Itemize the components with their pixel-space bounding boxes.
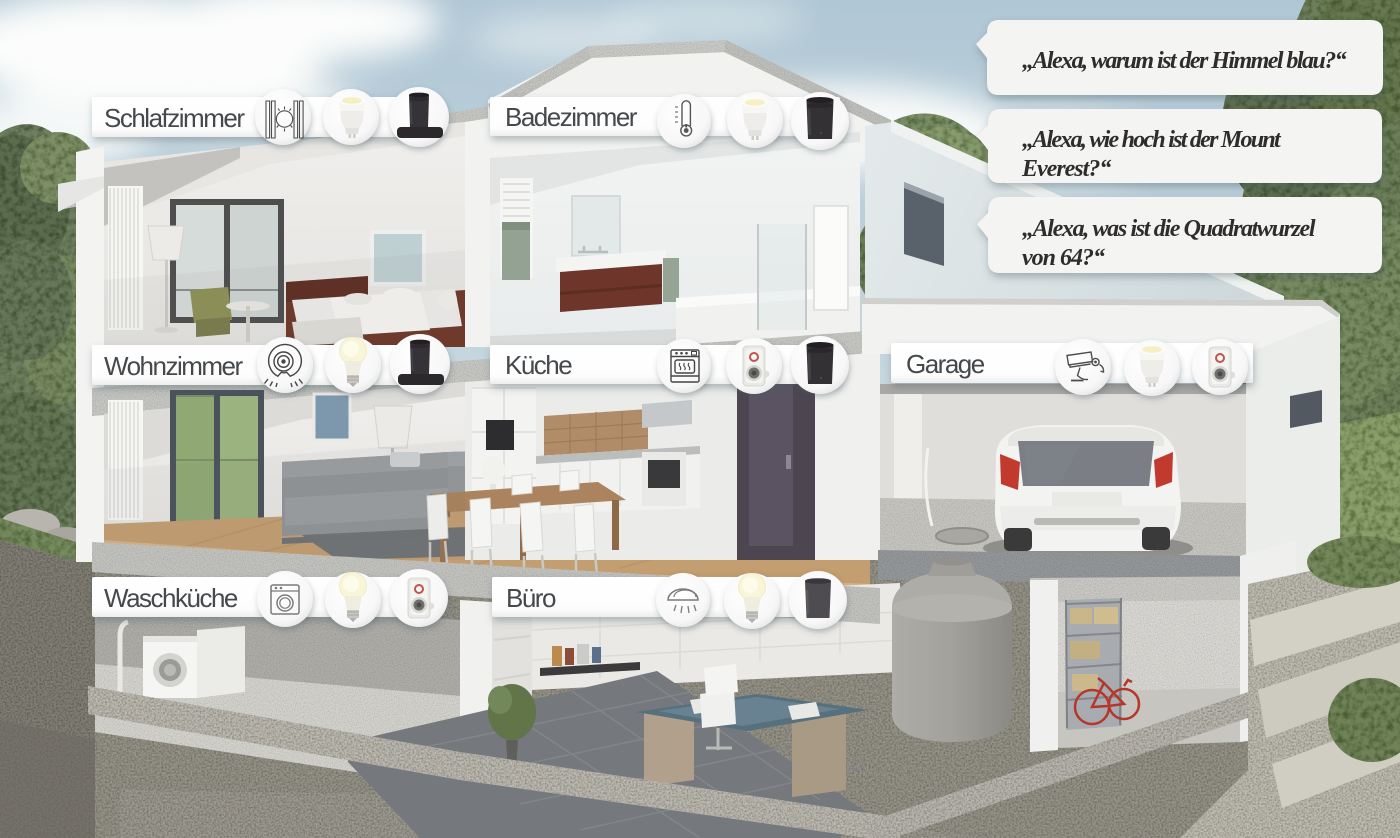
- svg-text:„Alexa, warum ist der Himmel b: „Alexa, warum ist der Himmel blau?“: [1022, 48, 1347, 74]
- svg-text:Schlafzimmer: Schlafzimmer: [104, 103, 245, 133]
- svg-text:Küche: Küche: [505, 350, 572, 380]
- svg-text:„Alexa, was ist die Quadratwur: „Alexa, was ist die Quadratwurzel: [1022, 216, 1316, 242]
- svg-text:Wohnzimmer: Wohnzimmer: [104, 351, 244, 381]
- svg-text:Büro: Büro: [506, 583, 556, 613]
- svg-text:Everest?“: Everest?“: [1021, 156, 1111, 182]
- svg-text:Waschküche: Waschküche: [104, 583, 238, 613]
- svg-text:Badezimmer: Badezimmer: [505, 102, 638, 132]
- svg-text:Garage: Garage: [906, 349, 985, 379]
- svg-text:„Alexa, wie hoch ist der Mount: „Alexa, wie hoch ist der Mount: [1022, 127, 1282, 153]
- svg-text:von 64?“: von 64?“: [1022, 245, 1105, 271]
